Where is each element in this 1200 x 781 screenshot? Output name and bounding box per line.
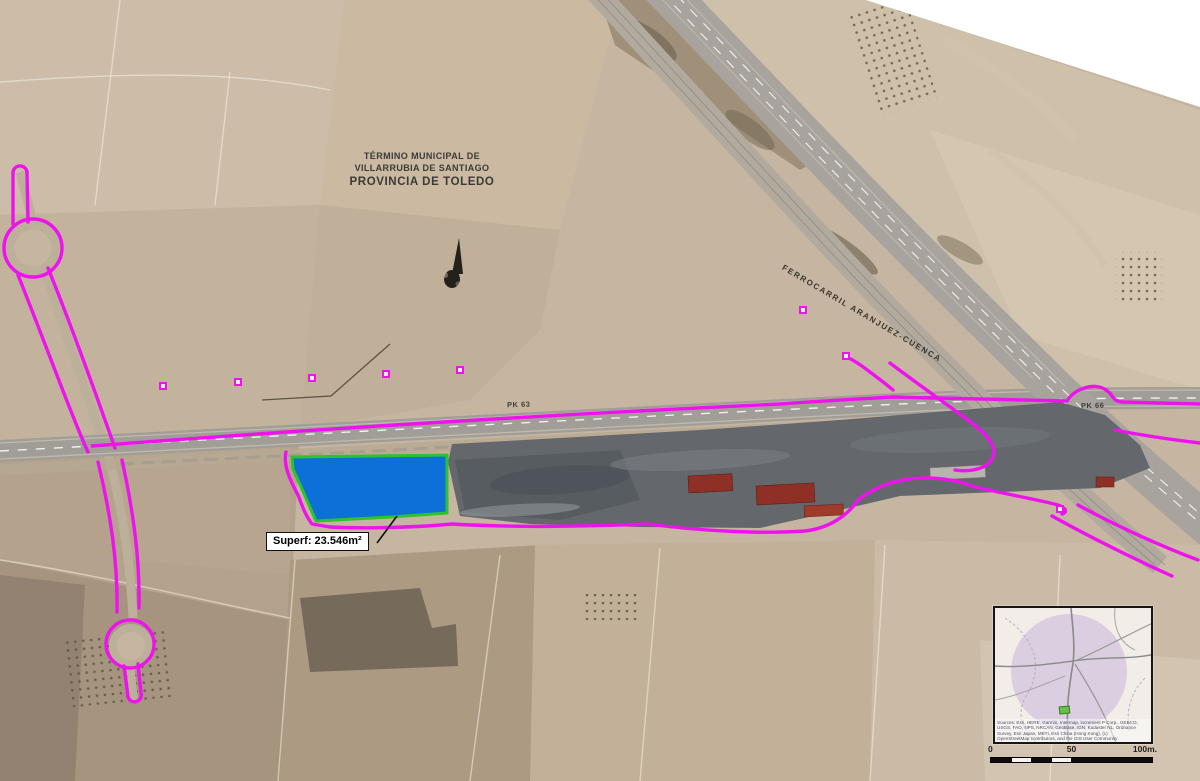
scale-tick-50: 50 [1067,744,1076,754]
scale-bar: 0 50 100m. [990,744,1153,768]
km-post-pk66: PK 66 [1081,401,1105,410]
scale-tick-100: 100m. [1133,744,1157,754]
municipality-line-1: TÉRMINO MUNICIPAL DE [322,151,522,163]
attribution-line: USGS, FAO, NPS, NRCAN, GeoBase, IGN, Kad… [997,725,1149,730]
municipality-label: TÉRMINO MUNICIPAL DE VILLARRUBIA DE SANT… [322,151,522,190]
municipality-line-3: PROVINCIA DE TOLEDO [322,175,522,190]
inset-location-marker [1059,706,1071,715]
km-post-pk63: PK 63 [507,400,531,410]
parcel-area-label: Superf: 23.546m² [266,532,369,551]
aerial-plan-map: TÉRMINO MUNICIPAL DE VILLARRUBIA DE SANT… [0,0,1200,781]
inset-attribution: Sources: Esri, HERE, Garmin, Intermap, i… [995,719,1151,742]
attribution-line: OpenStreetMap contributors, and the GIS … [997,736,1149,741]
inset-locator-map: Sources: Esri, HERE, Garmin, Intermap, i… [993,606,1153,744]
scale-tick-0: 0 [988,744,993,754]
municipality-line-2: VILLARRUBIA DE SANTIAGO [322,163,522,175]
scale-bar-segments [990,757,1153,763]
parcel-polygon [292,455,447,521]
